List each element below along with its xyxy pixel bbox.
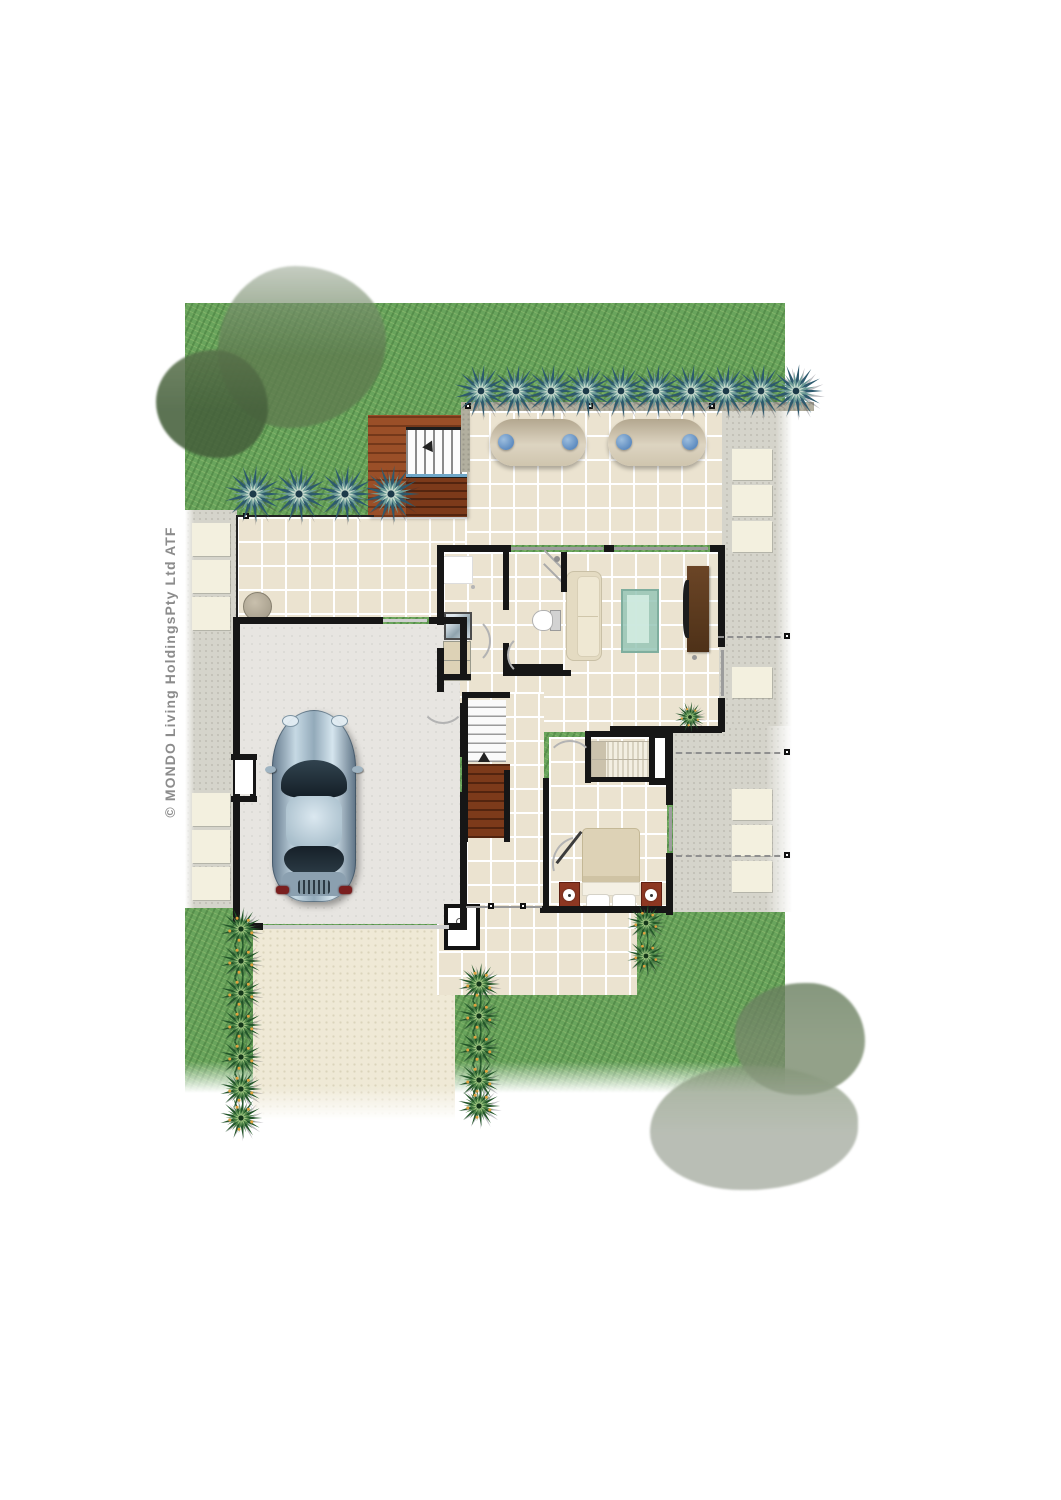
stepping-stone <box>732 667 772 698</box>
stepping-stone <box>732 861 772 892</box>
coffee-table-glass <box>627 595 649 643</box>
wall-segment <box>604 545 614 552</box>
wall-segment <box>504 770 510 842</box>
floor-drain <box>471 585 475 589</box>
green-spiky-plant <box>626 936 666 976</box>
boundary-marker <box>784 633 790 639</box>
blue-spiky-plant <box>768 363 824 419</box>
boundary-dash <box>676 855 790 857</box>
stepping-stone <box>732 789 772 820</box>
wall-segment <box>233 617 383 624</box>
green-spiky-plant <box>674 701 706 733</box>
car-headlight <box>282 715 299 727</box>
driveway <box>253 928 455 1120</box>
tree-canopy <box>156 350 268 458</box>
car-mirror <box>352 766 363 773</box>
car-mirror <box>265 766 276 773</box>
stepping-stone <box>192 597 230 630</box>
stepping-stone <box>192 523 230 556</box>
lounger-pillow <box>616 434 632 450</box>
wall-segment <box>503 552 509 610</box>
car-headlight <box>331 715 348 727</box>
toilet-bowl <box>532 610 553 631</box>
sun-lounger <box>608 419 706 466</box>
green-spiky-plant <box>219 1096 263 1140</box>
green-spiky-plant <box>457 1084 501 1128</box>
wall-segment <box>561 552 567 592</box>
tv-cabinet <box>687 566 709 652</box>
window-line <box>466 906 542 908</box>
stair-direction-arrow <box>478 752 490 762</box>
window-line <box>383 619 427 622</box>
car-engine-vents <box>298 880 330 894</box>
site-plan-page: © MONDO Living HoldingsPty Ltd ATF <box>0 0 1061 1500</box>
wall-segment <box>447 923 467 930</box>
boundary-dash <box>676 752 790 754</box>
stepping-stone <box>192 793 230 826</box>
bedside-lamp <box>645 889 657 901</box>
wall-segment <box>543 778 549 908</box>
coffee-table <box>621 589 659 653</box>
stepping-stone <box>192 830 230 863</box>
wall-segment <box>585 777 651 782</box>
stepping-stone <box>732 485 772 516</box>
lounger-pillow <box>498 434 514 450</box>
wall-recess <box>655 738 665 778</box>
tree-canopy <box>650 1066 858 1190</box>
tv-screen <box>683 580 689 638</box>
door-swing-arc <box>420 678 466 724</box>
door-swing-arc <box>507 634 549 676</box>
door-swing-arc <box>546 740 594 788</box>
wall-segment <box>437 545 444 625</box>
stepping-stone <box>192 560 230 593</box>
wall-segment <box>462 692 468 842</box>
blue-spiky-plant <box>361 464 421 524</box>
stepping-stone <box>732 521 772 552</box>
sun-lounger <box>490 419 586 466</box>
wall-segment <box>437 545 511 552</box>
wall-segment <box>718 552 725 647</box>
stepping-stone <box>732 825 772 856</box>
boundary-dash <box>718 636 790 638</box>
wall-segment <box>710 545 725 552</box>
shower-head <box>554 556 560 562</box>
boundary-marker <box>488 903 494 909</box>
stepping-stone <box>192 867 230 900</box>
stepping-stone <box>732 449 772 480</box>
window-line <box>669 807 672 851</box>
window-line <box>511 547 603 550</box>
door-swing-arc <box>441 616 491 666</box>
boundary-marker <box>784 749 790 755</box>
sofa <box>566 571 602 661</box>
window-line <box>614 547 708 550</box>
window-line <box>236 515 238 617</box>
car-taillight <box>276 886 289 894</box>
car <box>272 710 356 902</box>
wardrobe-shelf <box>591 741 651 760</box>
copyright-text: © MONDO Living HoldingsPty Ltd ATF <box>162 526 178 817</box>
speaker-dot <box>692 655 697 660</box>
boundary-marker <box>784 852 790 858</box>
wall-recess <box>235 760 253 794</box>
boundary-marker <box>520 903 526 909</box>
wall-segment <box>462 692 510 698</box>
window-line <box>263 925 449 929</box>
lounger-pillow <box>562 434 578 450</box>
car-taillight <box>339 886 352 894</box>
lounger-pillow <box>682 434 698 450</box>
entry-mat <box>443 556 473 584</box>
window-line <box>721 650 724 696</box>
wardrobe-shelf <box>591 759 651 778</box>
car-roof <box>286 796 342 848</box>
sofa-cushion-line <box>578 616 598 617</box>
